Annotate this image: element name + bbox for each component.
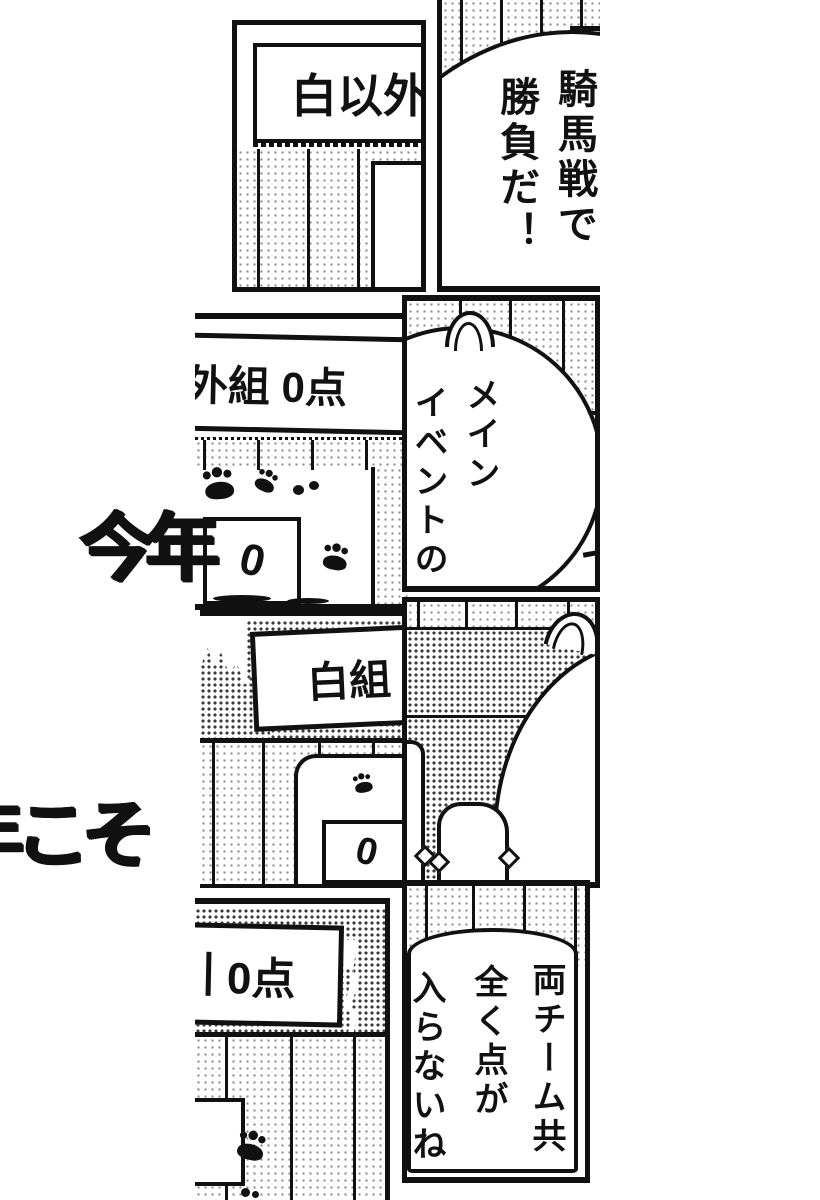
ground-shadow (287, 598, 329, 604)
panel-row2-right: メイン イベントの (402, 295, 600, 592)
podium-board: 0 (294, 754, 408, 888)
sign-row2-label: 外組 0点 (195, 351, 348, 415)
fence-post (465, 602, 468, 627)
speech-text-column: 勝負だ！ (496, 76, 536, 256)
fence-post (417, 602, 420, 627)
white-board (371, 161, 426, 292)
paw-toe-dot (252, 1191, 259, 1198)
sign-row4-label: 0点 (226, 942, 296, 1007)
sign-row4: 0点 (195, 922, 344, 1027)
scoreboard-value: 0 (234, 534, 270, 588)
paw-print-icon (251, 467, 285, 498)
background-text-bottom: 年こそ (0, 792, 148, 881)
scoreboard-value: 0 (351, 829, 382, 876)
speech-text-column: 全く点が (471, 964, 505, 1120)
fence-slat-line (357, 149, 360, 287)
sign-row3: 白組 (250, 624, 408, 732)
speech-text-column: 両チーム共 (529, 962, 563, 1157)
speech-text-column: 入らないね (409, 970, 443, 1165)
panel-row3-right (402, 597, 600, 888)
scoreboard: 0 (203, 517, 301, 605)
panel-row2-left: 外組 0点 0 (195, 313, 408, 610)
stray-line (583, 549, 600, 557)
fence-slat-line (353, 1037, 356, 1200)
fence-slat-line (257, 149, 260, 287)
creature-leg (437, 802, 509, 882)
paw-print-icon (320, 543, 356, 574)
speech-text-column: メイン (463, 377, 497, 494)
fence-slat-line (307, 149, 310, 287)
speech-text-column: 騎馬戦で (554, 68, 594, 248)
panel-row4-left: 0点 (195, 898, 390, 1200)
panel-top-right: 騎馬戦で 勝負だ！ (437, 0, 600, 292)
paw-toe-dot (241, 1188, 250, 1197)
clipped-glyph-fragment (206, 952, 212, 996)
fence-post (311, 440, 314, 470)
paw-print-icon (201, 467, 243, 501)
sign-top-left: 白以外 (253, 43, 426, 143)
paw-toe-dot (309, 481, 319, 490)
fence-post (257, 440, 260, 470)
fence-slat-line (262, 743, 265, 884)
ground-shadow (213, 595, 271, 602)
fence-post (515, 602, 518, 627)
sign-top-left-label: 白以外 (291, 60, 426, 126)
sign-row2: 外組 0点 (195, 333, 408, 436)
paw-toe-dot (293, 485, 304, 495)
speech-text-column: イベントの (411, 385, 445, 580)
fence-slat-line (290, 1037, 293, 1200)
fence-post (365, 440, 368, 470)
manga-page: 今年 年こそ 白以外 騎馬戦で 勝負だ！ 外組 0点 (0, 0, 820, 1200)
fence-slat-line (212, 743, 215, 884)
sign-bottom-trim (253, 143, 421, 147)
paw-print-icon (352, 772, 379, 795)
sign-row3-label: 白組 (306, 645, 393, 710)
panel-top-left: 白以外 (232, 20, 426, 292)
fence-rail-band (195, 437, 408, 470)
panel-row4-right: 両チーム共 全く点が 入らないね (402, 880, 590, 1183)
panel-row3-left: 白組 0 (200, 610, 408, 888)
background-text-top: 今年 (80, 505, 212, 594)
fence-post (203, 440, 206, 470)
scoreboard: 0 (322, 820, 408, 884)
